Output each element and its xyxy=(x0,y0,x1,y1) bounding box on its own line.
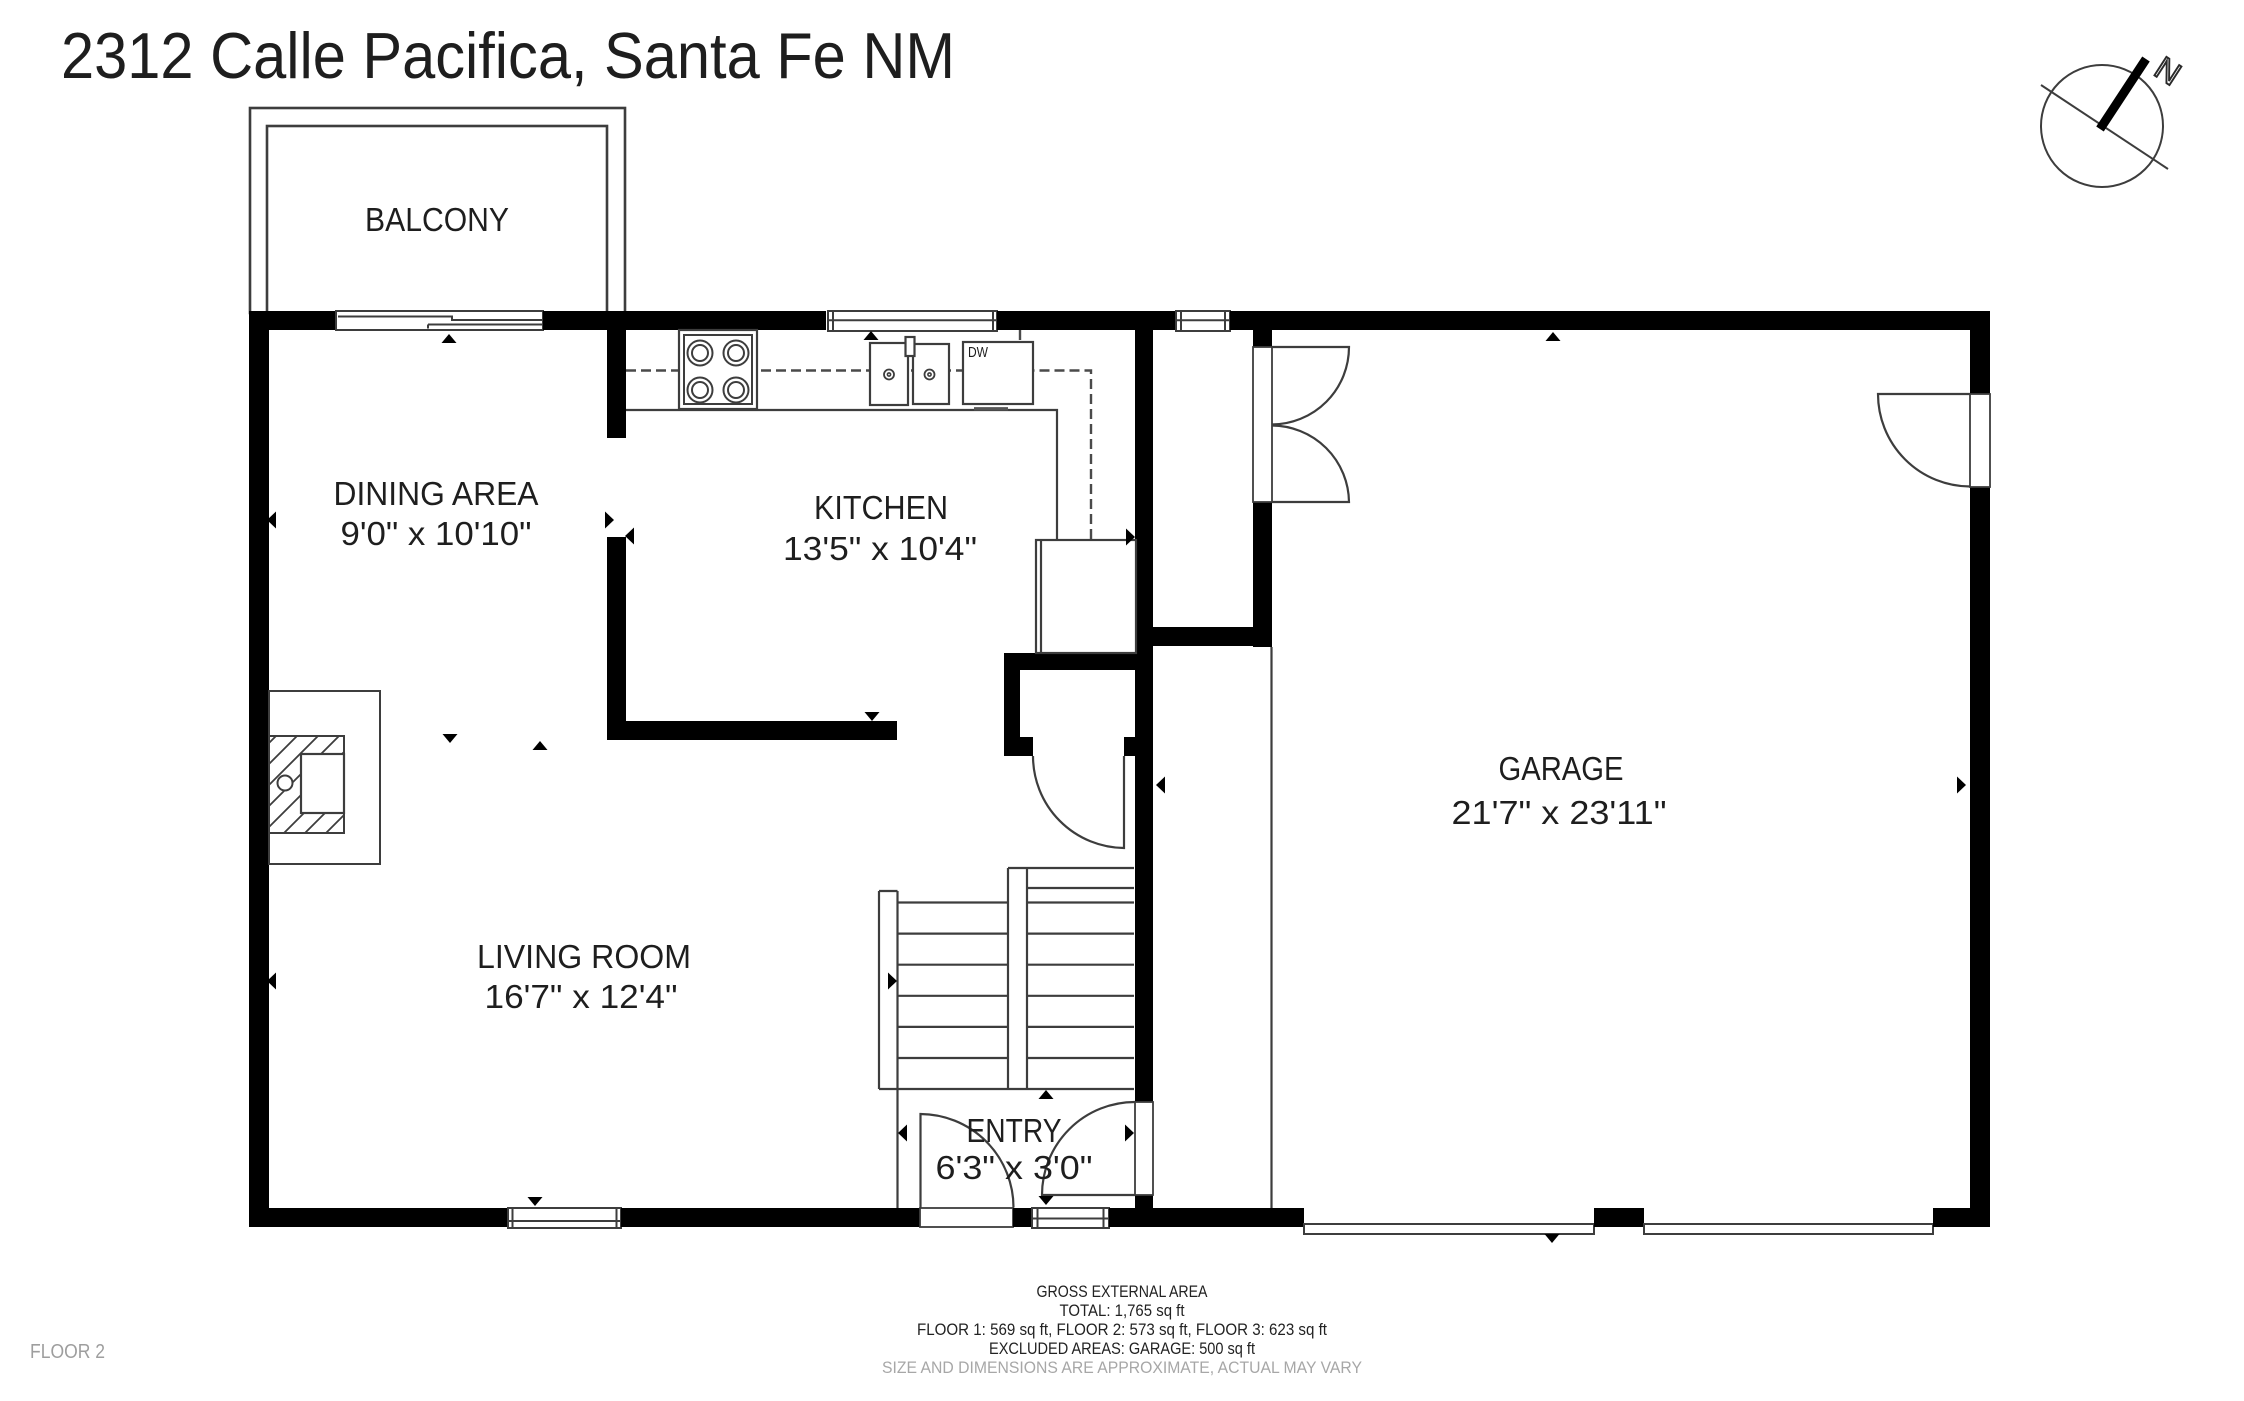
svg-text:TOTAL: 1,765 sq ft: TOTAL: 1,765 sq ft xyxy=(1060,1301,1185,1320)
svg-text:KITCHEN: KITCHEN xyxy=(814,489,948,526)
svg-text:LIVING ROOM: LIVING ROOM xyxy=(477,938,691,975)
svg-text:DW: DW xyxy=(968,344,989,361)
svg-text:16'7" x 12'4": 16'7" x 12'4" xyxy=(485,978,678,1015)
svg-text:EXCLUDED AREAS: GARAGE: 500 sq: EXCLUDED AREAS: GARAGE: 500 sq ft xyxy=(989,1339,1255,1358)
svg-text:9'0" x 10'10": 9'0" x 10'10" xyxy=(341,515,532,552)
svg-text:6'3" x 3'0": 6'3" x 3'0" xyxy=(936,1149,1093,1186)
svg-text:FLOOR 1: 569 sq ft, FLOOR 2: 5: FLOOR 1: 569 sq ft, FLOOR 2: 573 sq ft, … xyxy=(917,1320,1327,1339)
svg-text:21'7" x 23'11": 21'7" x 23'11" xyxy=(1452,794,1667,831)
svg-text:SIZE AND DIMENSIONS ARE APPROX: SIZE AND DIMENSIONS ARE APPROXIMATE, ACT… xyxy=(882,1358,1362,1377)
svg-text:FLOOR 2: FLOOR 2 xyxy=(30,1341,105,1363)
svg-text:BALCONY: BALCONY xyxy=(365,201,509,238)
svg-text:2312 Calle Pacifica, Santa Fe: 2312 Calle Pacifica, Santa Fe NM xyxy=(61,19,955,92)
svg-text:GARAGE: GARAGE xyxy=(1499,750,1624,787)
svg-text:GROSS EXTERNAL AREA: GROSS EXTERNAL AREA xyxy=(1037,1282,1209,1301)
svg-text:DINING AREA: DINING AREA xyxy=(334,475,539,512)
svg-text:13'5" x 10'4": 13'5" x 10'4" xyxy=(783,530,977,567)
svg-text:ENTRY: ENTRY xyxy=(967,1112,1062,1149)
